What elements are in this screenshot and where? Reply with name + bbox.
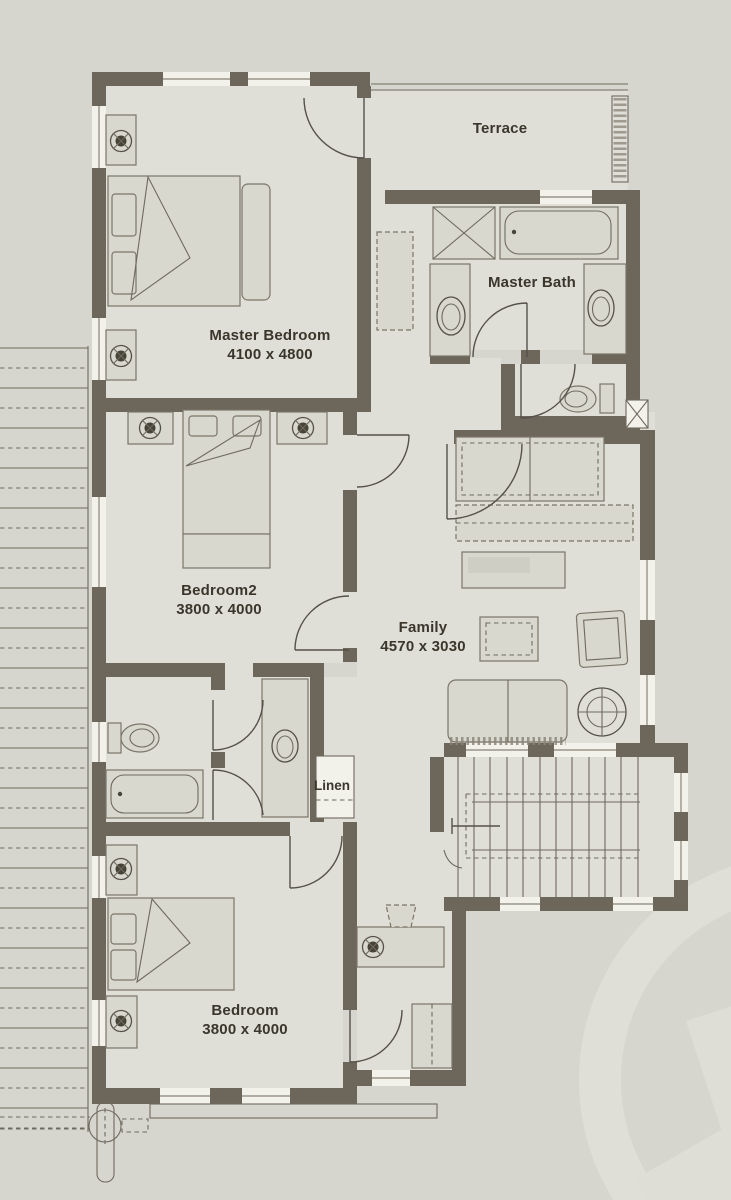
toilet [121, 724, 159, 752]
floor-stairs [444, 757, 674, 897]
toilet-tank [108, 723, 121, 753]
label-family: Family [399, 619, 448, 636]
label-bedroom2: Bedroom2 [181, 582, 257, 599]
pillow [112, 194, 136, 236]
floor-plan-page: Terrace Master Bedroom 4100 x 4800 Maste… [0, 0, 731, 1200]
watermark-logo [600, 875, 731, 1200]
dims-master-bedroom: 4100 x 4800 [227, 346, 313, 363]
label-terrace: Terrace [473, 120, 528, 137]
pillow [189, 416, 217, 436]
side-table [578, 688, 626, 736]
console-top [468, 557, 530, 573]
dims-bedroom: 3800 x 4000 [202, 1021, 288, 1038]
armchair [576, 610, 628, 667]
label-linen: Linen [314, 778, 350, 793]
bed-foot [183, 534, 270, 568]
hall-closet [377, 232, 413, 330]
dims-bedroom2: 3800 x 4000 [176, 601, 262, 618]
toilet-tank [600, 384, 614, 413]
bathtub [500, 207, 618, 259]
bed-bench [242, 184, 270, 300]
dims-family: 4570 x 3030 [380, 638, 466, 655]
pillow [233, 416, 261, 436]
pillow [111, 950, 136, 980]
desk-chair [386, 905, 416, 927]
washroom-vanity [262, 679, 308, 817]
label-master-bedroom: Master Bedroom [209, 327, 330, 344]
floor-plan-drawing: Terrace Master Bedroom 4100 x 4800 Maste… [0, 0, 731, 1200]
vanity [584, 264, 626, 354]
vanity [262, 679, 308, 817]
louver-pattern [0, 346, 88, 1132]
label-bedroom: Bedroom [211, 1002, 278, 1019]
window-sill [150, 1104, 437, 1118]
pillow [111, 914, 136, 944]
label-master-bath: Master Bath [488, 274, 576, 291]
drain-pipe-symbol [0, 1102, 148, 1182]
coffee-table [480, 617, 538, 661]
